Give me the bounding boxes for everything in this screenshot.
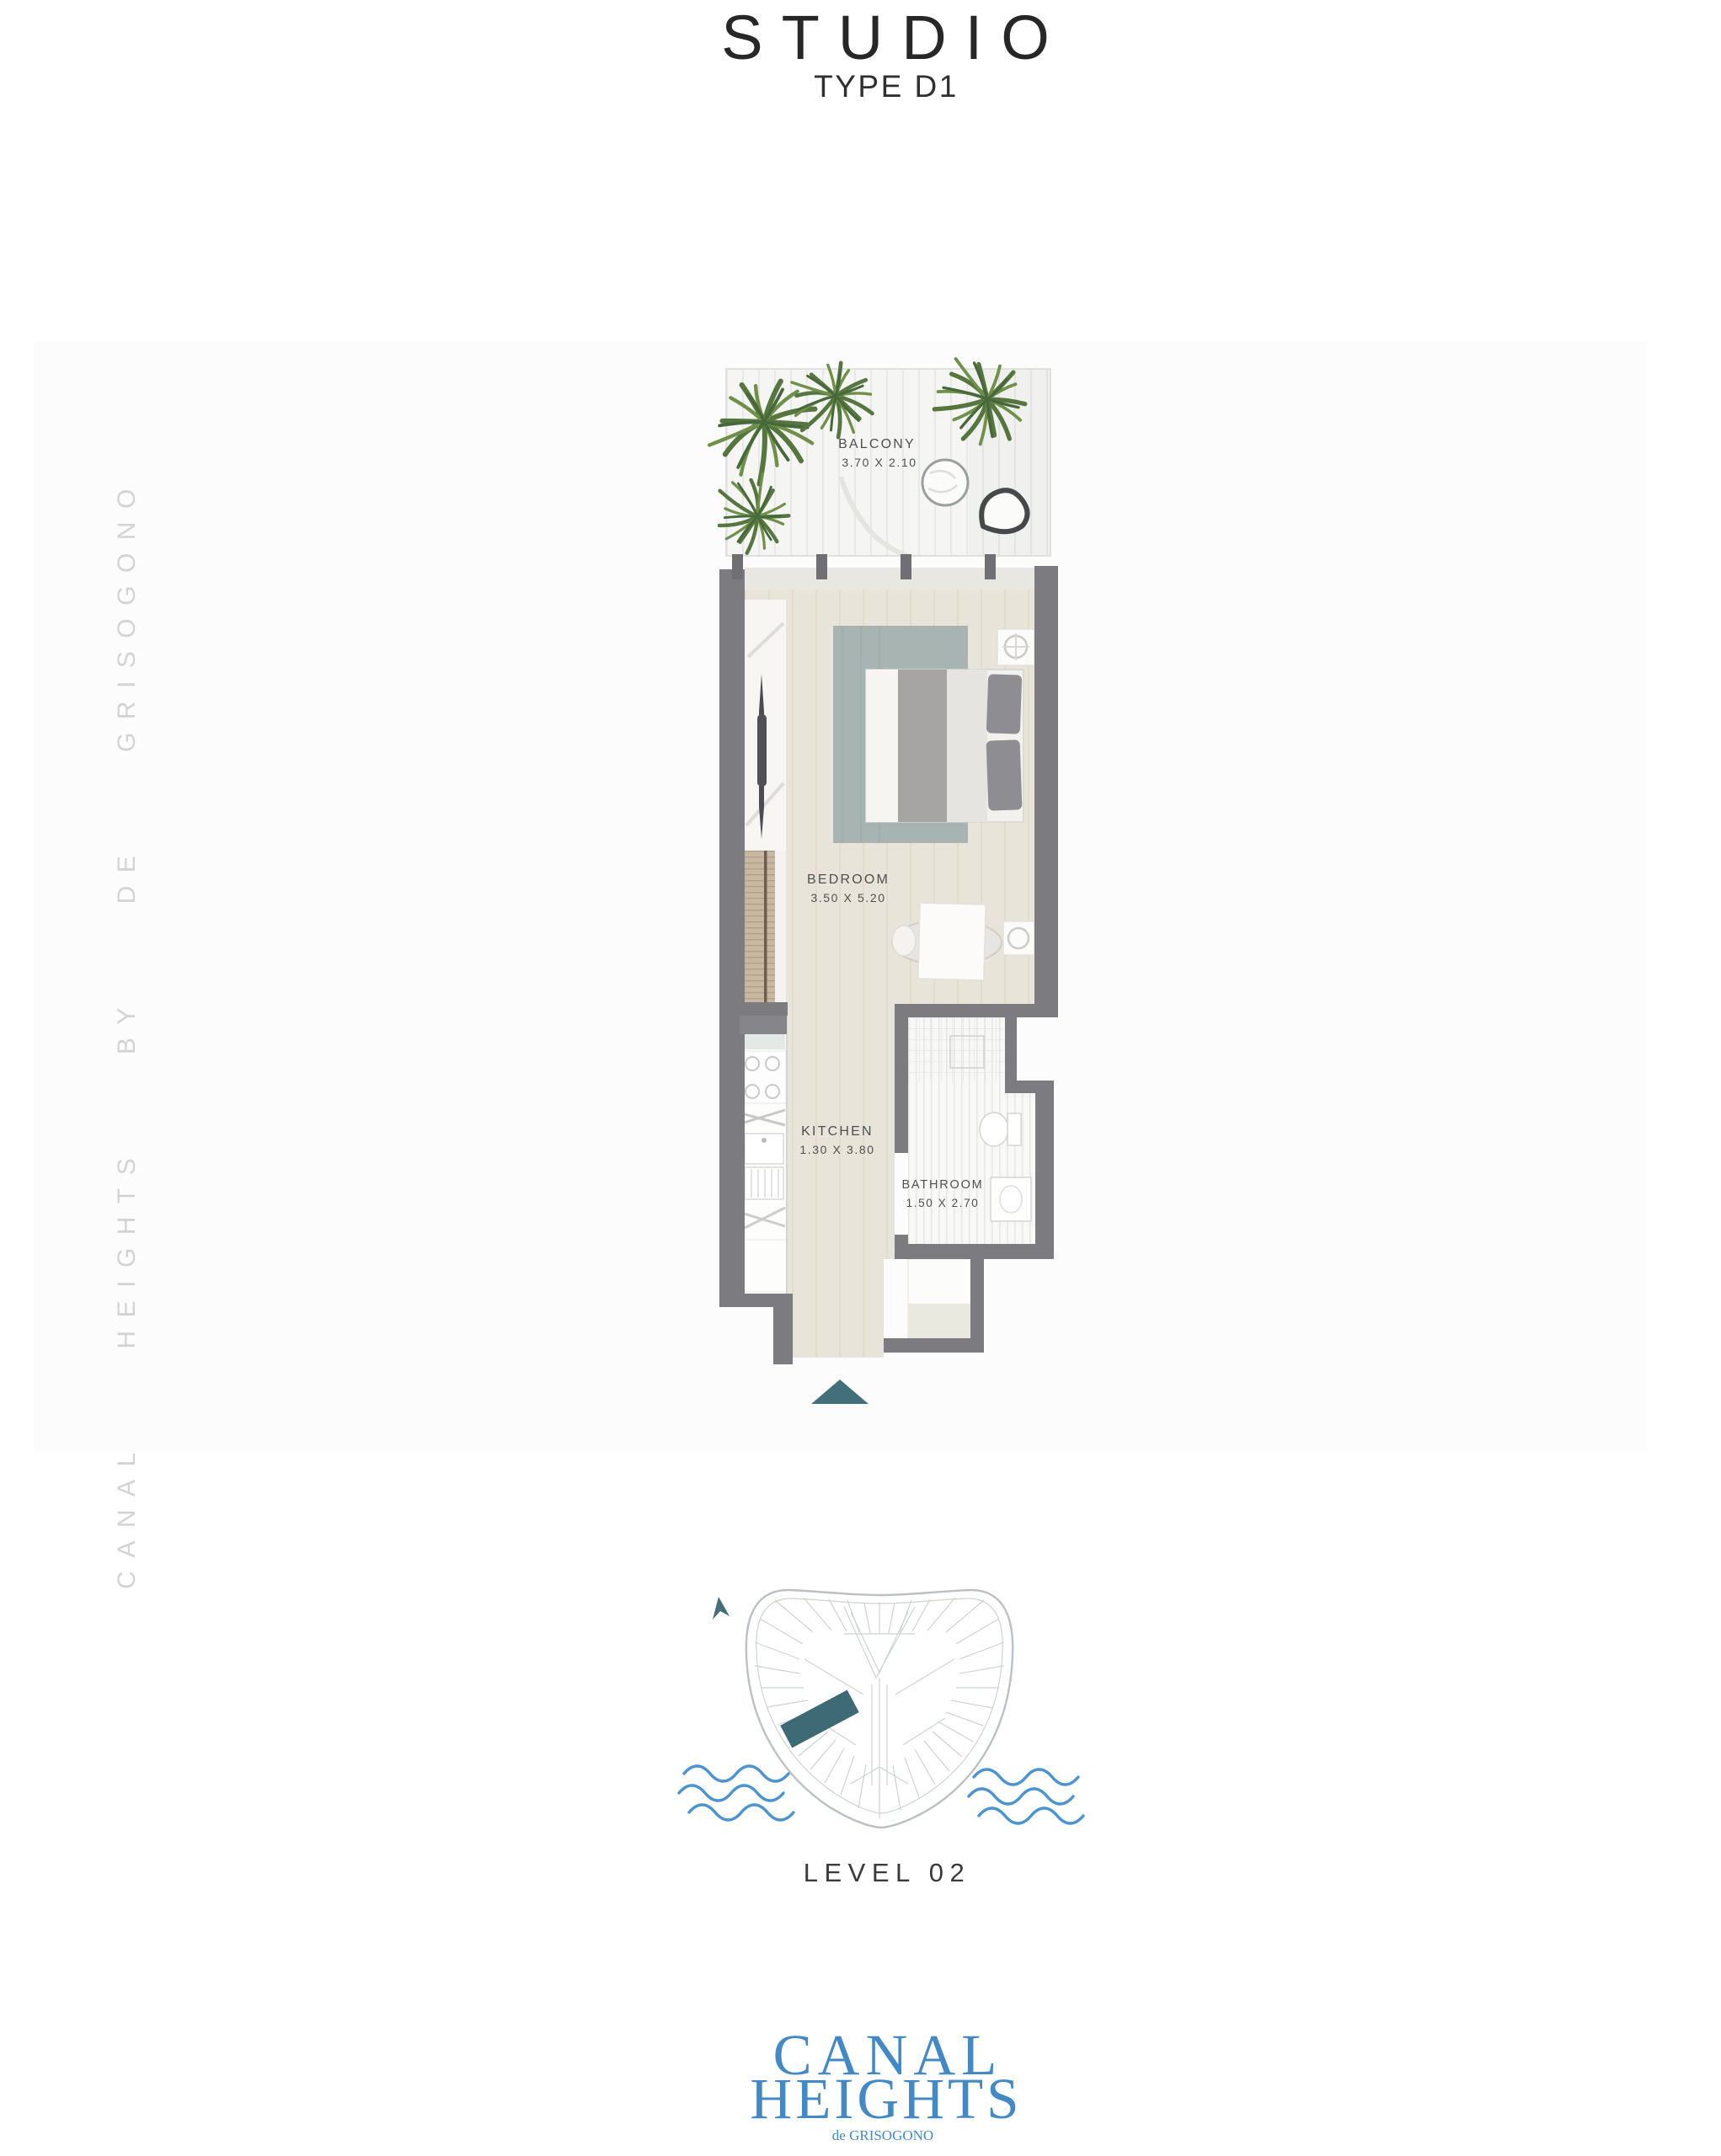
svg-text:BEDROOM: BEDROOM	[807, 873, 890, 887]
svg-text:1.30 X 3.80: 1.30 X 3.80	[799, 1143, 874, 1156]
svg-text:3.50 X 5.20: 3.50 X 5.20	[810, 891, 885, 905]
svg-text:BALCONY: BALCONY	[838, 437, 916, 451]
svg-text:1.50 X 2.70: 1.50 X 2.70	[906, 1197, 980, 1209]
svg-text:3.70 X 2.10: 3.70 X 2.10	[842, 456, 917, 469]
svg-text:KITCHEN: KITCHEN	[801, 1124, 874, 1139]
svg-text:BATHROOM: BATHROOM	[901, 1178, 983, 1192]
